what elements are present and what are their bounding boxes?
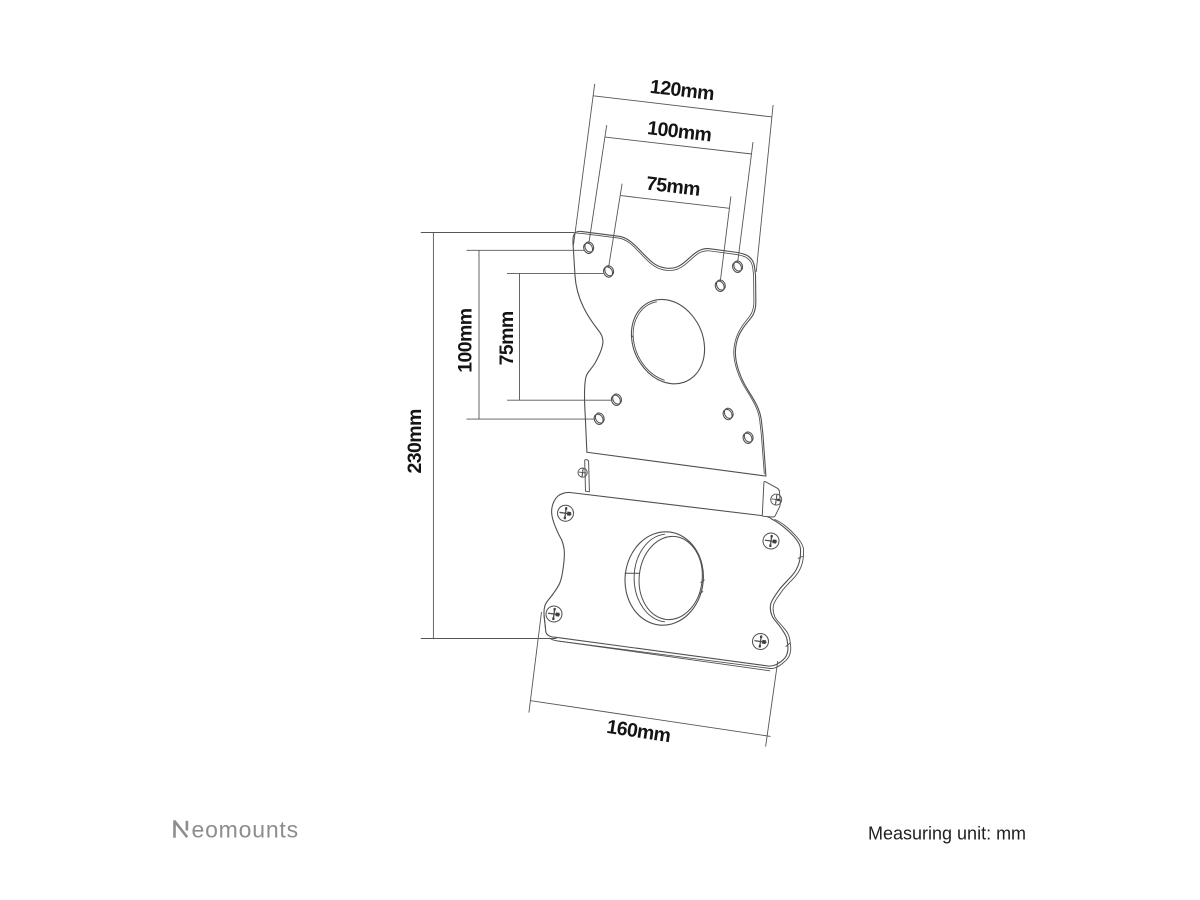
svg-text:Measuring unit: mm: Measuring unit: mm	[868, 823, 1026, 843]
svg-text:100mm: 100mm	[454, 308, 476, 372]
svg-text:75mm: 75mm	[496, 311, 518, 365]
svg-text:230mm: 230mm	[404, 409, 426, 473]
svg-text:eomounts: eomounts	[192, 817, 299, 843]
